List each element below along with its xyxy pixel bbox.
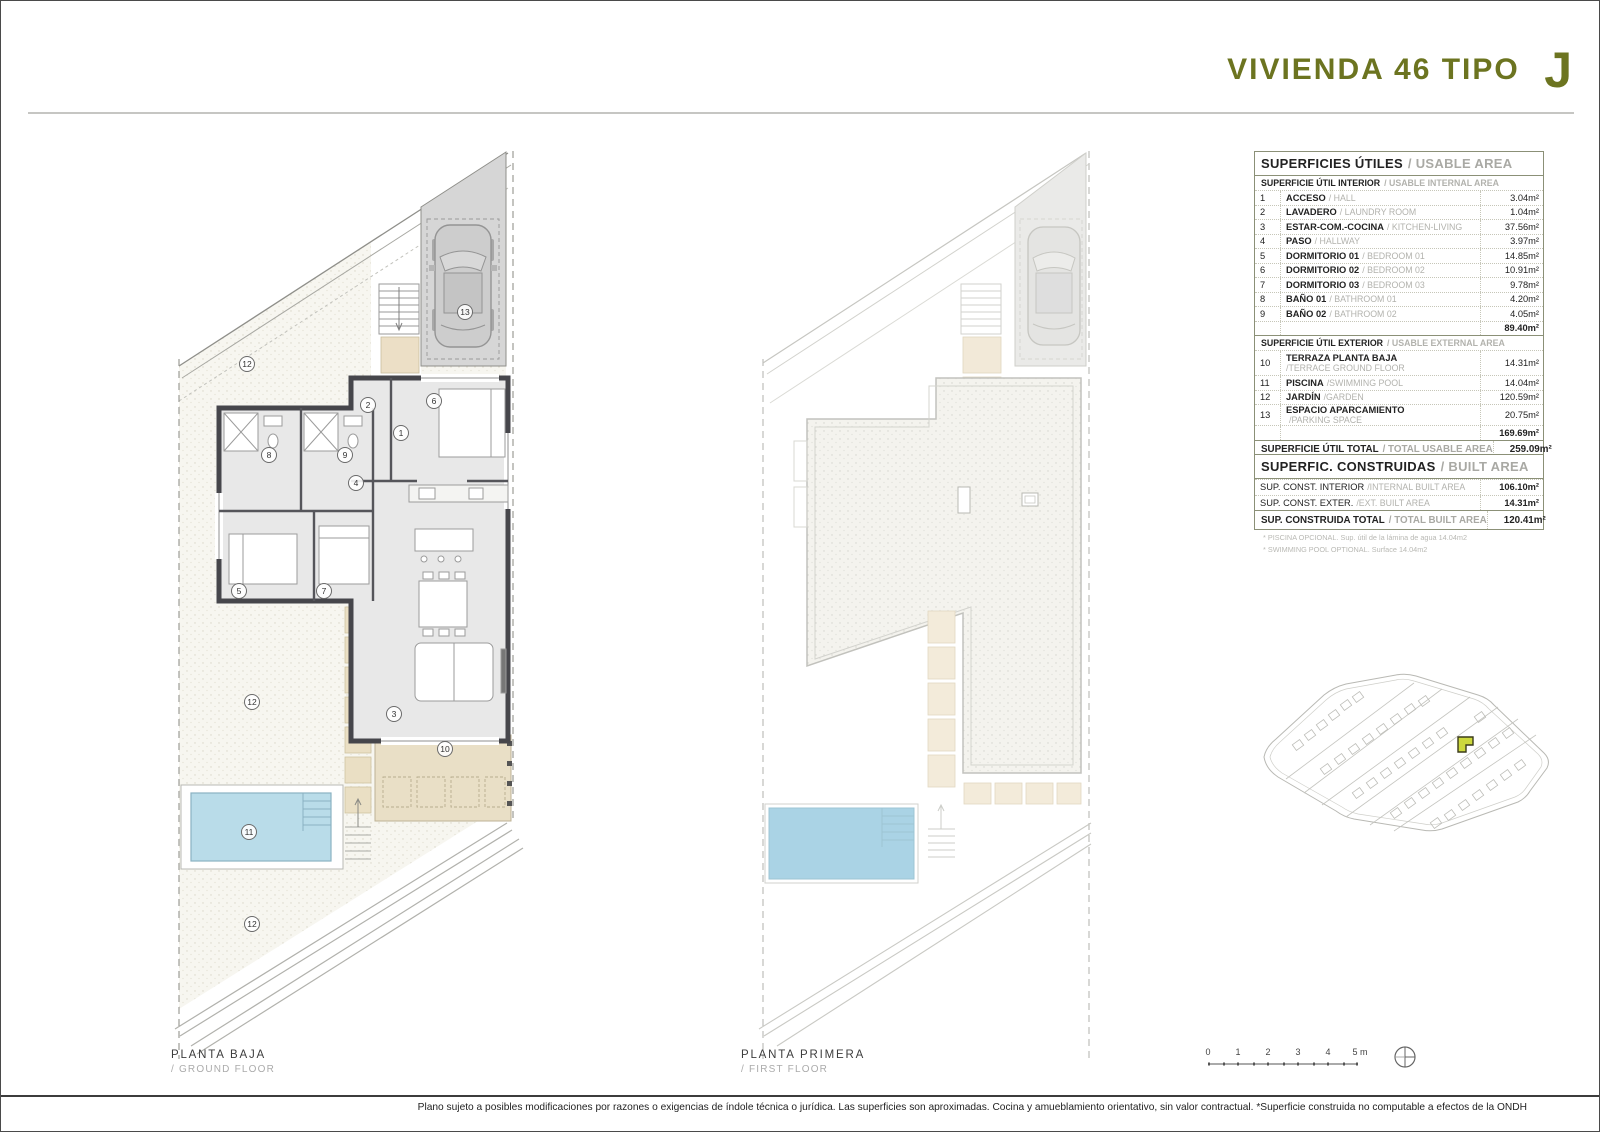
table-row: 2LAVADERO/ LAUNDRY ROOM1.04m² bbox=[1255, 205, 1543, 220]
legal-disclaimer: Plano sujeto a posibles modificaciones p… bbox=[418, 1102, 1527, 1113]
north-icon bbox=[1393, 1045, 1417, 1069]
row-name: JARDÍN/GARDEN bbox=[1281, 391, 1480, 405]
row-name: PISCINA/SWIMMING POOL bbox=[1281, 376, 1480, 390]
row-name: TERRAZA PLANTA BAJA/TERRACE GROUND FLOOR bbox=[1281, 351, 1480, 375]
entry-stairs-icon bbox=[379, 284, 419, 334]
table-row: 1ACCESO/ HALL3.04m² bbox=[1255, 190, 1543, 205]
stairs-icon bbox=[961, 284, 1001, 334]
room-label-8: 8 bbox=[261, 447, 277, 463]
built-area-table: SUPERFIC. CONSTRUIDAS / BUILT AREA SUP. … bbox=[1254, 454, 1544, 530]
section-header-es: SUPERFICIE ÚTIL INTERIOR bbox=[1261, 178, 1380, 188]
table-row: 11PISCINA/SWIMMING POOL14.04m² bbox=[1255, 375, 1543, 390]
room-label-9: 9 bbox=[337, 447, 353, 463]
table-title-en: / USABLE AREA bbox=[1408, 156, 1513, 171]
row-num: 4 bbox=[1255, 235, 1281, 249]
site-location-map bbox=[1246, 661, 1566, 851]
room-label-6: 6 bbox=[426, 393, 442, 409]
page-title-text: VIVIENDA 46 TIPO bbox=[1227, 53, 1520, 86]
section-header-es: SUPERFICIE ÚTIL EXTERIOR bbox=[1261, 338, 1383, 348]
skylight bbox=[1022, 493, 1038, 506]
scale-tick: 0 bbox=[1196, 1047, 1220, 1057]
row-num: 10 bbox=[1255, 351, 1281, 375]
ground-floor-plan: 1 2 3 4 5 6 7 8 9 10 11 13 12 12 12 bbox=[169, 141, 524, 1066]
table-title-es: SUPERFIC. CONSTRUIDAS bbox=[1261, 459, 1436, 474]
row-value: 14.85m² bbox=[1480, 249, 1543, 263]
row-value: 37.56m² bbox=[1480, 220, 1543, 234]
planters bbox=[794, 441, 807, 527]
row-name: ESPACIO APARCAMIENTO/PARKING SPACE bbox=[1281, 405, 1480, 425]
section-header-en: / USABLE EXTERNAL AREA bbox=[1387, 338, 1505, 348]
row-value: 4.05m² bbox=[1480, 307, 1543, 321]
table-row: 3ESTAR-COM.-COCINA/ KITCHEN-LIVING37.56m… bbox=[1255, 219, 1543, 234]
table-row: 6DORMITORIO 02/ BEDROOM 0210.91m² bbox=[1255, 263, 1543, 278]
row-name: SUP. CONST. INTERIOR/INTERNAL BUILT AREA bbox=[1255, 480, 1480, 495]
room-label-13: 13 bbox=[457, 304, 473, 320]
footnote-en: * SWIMMING POOL OPTIONAL. Surface 14.04m… bbox=[1263, 544, 1467, 556]
room-label-7: 7 bbox=[316, 583, 332, 599]
first-floor-drawing bbox=[734, 141, 1116, 1066]
scale-tick: 2 bbox=[1256, 1047, 1280, 1057]
built-total-value: 120.41m² bbox=[1487, 511, 1550, 529]
car-icon bbox=[1028, 227, 1080, 345]
row-num: 13 bbox=[1255, 405, 1281, 425]
pool bbox=[181, 785, 343, 869]
row-name: DORMITORIO 03/ BEDROOM 03 bbox=[1281, 278, 1480, 292]
row-name: ESTAR-COM.-COCINA/ KITCHEN-LIVING bbox=[1281, 220, 1480, 234]
highlighted-plot bbox=[1458, 737, 1473, 752]
row-num: 1 bbox=[1255, 191, 1281, 205]
room-label-10: 10 bbox=[437, 741, 453, 757]
row-value: 20.75m² bbox=[1480, 405, 1543, 425]
section-header-en: / USABLE INTERNAL AREA bbox=[1384, 178, 1499, 188]
built-area-table-title: SUPERFIC. CONSTRUIDAS / BUILT AREA bbox=[1255, 455, 1543, 479]
exterior-subtotal-value: 169.69m² bbox=[1480, 426, 1543, 440]
car-icon bbox=[429, 225, 497, 347]
row-value: 1.04m² bbox=[1480, 206, 1543, 220]
caption-en: / FIRST FLOOR bbox=[741, 1064, 865, 1075]
row-num: 12 bbox=[1255, 391, 1281, 405]
row-name: SUP. CONST. EXTER./EXT. BUILT AREA bbox=[1255, 496, 1480, 511]
row-value: 4.20m² bbox=[1480, 293, 1543, 307]
row-value: 120.59m² bbox=[1480, 391, 1543, 405]
scale-tick: 1 bbox=[1226, 1047, 1250, 1057]
usable-area-table: SUPERFICIES ÚTILES / USABLE AREA SUPERFI… bbox=[1254, 151, 1544, 460]
exterior-subtotal-row: 169.69m² bbox=[1255, 425, 1543, 440]
row-value: 10.91m² bbox=[1480, 264, 1543, 278]
row-name: DORMITORIO 02/ BEDROOM 02 bbox=[1281, 264, 1480, 278]
villa-type-letter: J bbox=[1544, 42, 1572, 98]
row-value: 106.10m² bbox=[1480, 480, 1543, 495]
row-value: 3.04m² bbox=[1480, 191, 1543, 205]
table-row: SUP. CONST. EXTER./EXT. BUILT AREA14.31m… bbox=[1255, 495, 1543, 511]
row-value: 14.31m² bbox=[1480, 351, 1543, 375]
scale-bar: 0 1 2 3 4 5 m bbox=[1208, 1047, 1378, 1073]
pool bbox=[765, 804, 918, 883]
ground-floor-caption: PLANTA BAJA / GROUND FLOOR bbox=[171, 1049, 275, 1075]
table-row: 4PASO/ HALLWAY3.97m² bbox=[1255, 234, 1543, 249]
table-title-es: SUPERFICIES ÚTILES bbox=[1261, 156, 1403, 171]
interior-section-header: SUPERFICIE ÚTIL INTERIOR / USABLE INTERN… bbox=[1255, 176, 1543, 190]
room-label-12a: 12 bbox=[239, 356, 255, 372]
ground-floor-drawing bbox=[169, 141, 524, 1066]
row-value: 14.31m² bbox=[1480, 496, 1543, 511]
page-title: VIVIENDA 46 TIPO J bbox=[1227, 41, 1572, 99]
row-num: 3 bbox=[1255, 220, 1281, 234]
table-row: 9BAÑO 02/ BATHROOM 024.05m² bbox=[1255, 306, 1543, 321]
scale-tick: 5 m bbox=[1348, 1047, 1372, 1057]
row-value: 14.04m² bbox=[1480, 376, 1543, 390]
room-label-5: 5 bbox=[231, 583, 247, 599]
table-row: 10TERRAZA PLANTA BAJA/TERRACE GROUND FLO… bbox=[1255, 350, 1543, 375]
table-row: 8BAÑO 01/ BATHROOM 014.20m² bbox=[1255, 292, 1543, 307]
row-name: BAÑO 02/ BATHROOM 02 bbox=[1281, 307, 1480, 321]
total-label-es: SUP. CONSTRUIDA TOTAL bbox=[1261, 515, 1385, 526]
interior-subtotal-row: 89.40m² bbox=[1255, 321, 1543, 336]
parking-space bbox=[1015, 153, 1086, 366]
room-label-1: 1 bbox=[393, 425, 409, 441]
row-num: 9 bbox=[1255, 307, 1281, 321]
row-name: PASO/ HALLWAY bbox=[1281, 235, 1480, 249]
footnote-es: * PISCINA OPCIONAL. Sup. útil de la lámi… bbox=[1263, 532, 1467, 544]
interior-subtotal-value: 89.40m² bbox=[1480, 322, 1543, 336]
room-label-2: 2 bbox=[360, 397, 376, 413]
caption-en: / GROUND FLOOR bbox=[171, 1064, 275, 1075]
row-name: DORMITORIO 01/ BEDROOM 01 bbox=[1281, 249, 1480, 263]
parking-space bbox=[421, 152, 506, 366]
development-outline bbox=[1264, 674, 1548, 831]
scale-tick: 3 bbox=[1286, 1047, 1310, 1057]
row-num: 7 bbox=[1255, 278, 1281, 292]
site-map-drawing bbox=[1246, 661, 1566, 851]
garden-stairs-icon bbox=[928, 805, 955, 857]
exterior-section-header: SUPERFICIE ÚTIL EXTERIOR / USABLE EXTERN… bbox=[1255, 335, 1543, 350]
row-name: ACCESO/ HALL bbox=[1281, 191, 1480, 205]
table-row: 13ESPACIO APARCAMIENTO/PARKING SPACE20.7… bbox=[1255, 404, 1543, 425]
table-row: 5DORMITORIO 01/ BEDROOM 0114.85m² bbox=[1255, 248, 1543, 263]
row-name: LAVADERO/ LAUNDRY ROOM bbox=[1281, 206, 1480, 220]
row-num: 2 bbox=[1255, 206, 1281, 220]
table-row: SUP. CONST. INTERIOR/INTERNAL BUILT AREA… bbox=[1255, 479, 1543, 495]
usable-area-table-title: SUPERFICIES ÚTILES / USABLE AREA bbox=[1255, 152, 1543, 176]
scale-bar-line bbox=[1208, 1060, 1368, 1068]
row-name: BAÑO 01/ BATHROOM 01 bbox=[1281, 293, 1480, 307]
row-num: 8 bbox=[1255, 293, 1281, 307]
first-floor-plan bbox=[734, 141, 1116, 1066]
table-row: 7DORMITORIO 03/ BEDROOM 039.78m² bbox=[1255, 277, 1543, 292]
room-label-12b: 12 bbox=[244, 694, 260, 710]
total-label-en: / TOTAL BUILT AREA bbox=[1389, 515, 1487, 526]
built-total-row: SUP. CONSTRUIDA TOTAL/ TOTAL BUILT AREA … bbox=[1255, 510, 1543, 529]
row-value: 9.78m² bbox=[1480, 278, 1543, 292]
table-title-en: / BUILT AREA bbox=[1441, 459, 1529, 474]
footer-divider bbox=[1, 1095, 1600, 1097]
caption-es: PLANTA BAJA bbox=[171, 1049, 275, 1061]
title-divider bbox=[28, 112, 1574, 114]
room-label-4: 4 bbox=[348, 475, 364, 491]
room-label-12c: 12 bbox=[244, 916, 260, 932]
caption-es: PLANTA PRIMERA bbox=[741, 1049, 865, 1061]
row-num: 5 bbox=[1255, 249, 1281, 263]
row-value: 3.97m² bbox=[1480, 235, 1543, 249]
room-label-3: 3 bbox=[386, 706, 402, 722]
skylight bbox=[958, 487, 970, 513]
first-floor-caption: PLANTA PRIMERA / FIRST FLOOR bbox=[741, 1049, 865, 1075]
row-num: 6 bbox=[1255, 264, 1281, 278]
scale-tick: 4 bbox=[1316, 1047, 1340, 1057]
room-label-11: 11 bbox=[241, 824, 257, 840]
table-row: 12JARDÍN/GARDEN120.59m² bbox=[1255, 390, 1543, 405]
row-num: 11 bbox=[1255, 376, 1281, 390]
plan-sheet: VIVIENDA 46 TIPO J bbox=[0, 0, 1600, 1132]
pool-footnotes: * PISCINA OPCIONAL. Sup. útil de la lámi… bbox=[1263, 532, 1467, 555]
